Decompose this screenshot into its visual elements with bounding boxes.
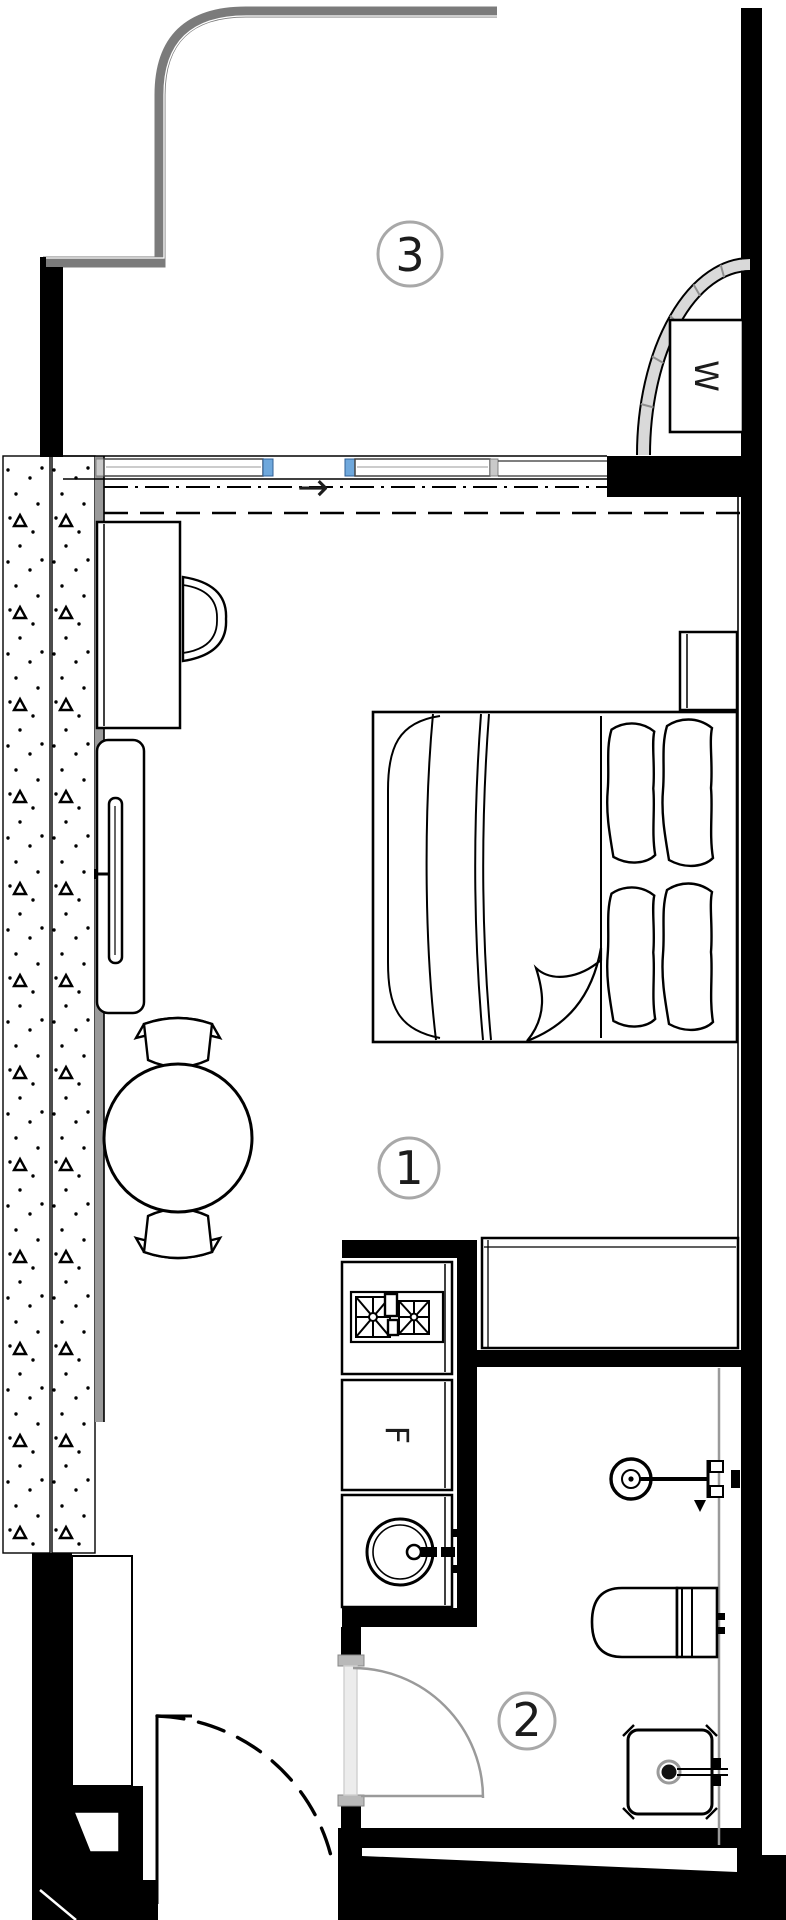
room-label-1: 1 [379,1138,439,1198]
wardrobe-cabinet [482,1238,738,1348]
nightstand [680,632,737,710]
bed [373,712,737,1042]
window-jamb [96,459,104,476]
entry-direction-arrow-icon: → [297,465,329,509]
burner-icon [399,1301,429,1334]
room-label-2: 2 [499,1693,555,1749]
floor-plan-svg: → [0,0,786,1920]
fridge-label: F [378,1426,416,1444]
window-mullion [263,459,273,476]
kitchen-sink [342,1495,460,1607]
wardrobe-label: W [687,360,725,392]
room-label-2-text: 2 [512,1693,541,1747]
door-jamb [338,1655,364,1666]
dining-chair-bottom [136,1209,220,1258]
floor-plan: → [0,0,786,1920]
dining-chair-top [136,1018,220,1067]
room-label-3-text: 3 [395,228,424,282]
door-jamb [338,1795,364,1806]
kitchen-fridge: F [342,1380,452,1490]
hatched-wall [3,456,104,1553]
faucet [407,1545,421,1559]
kitchen-stove [342,1262,452,1374]
room-label-3: 3 [378,222,442,286]
toilet [592,1588,725,1657]
desk [97,522,180,728]
window-jamb [490,459,498,476]
dining-table [104,1064,252,1212]
room-label-1-text: 1 [394,1141,423,1195]
bathroom-sink [623,1725,728,1819]
window-mullion [345,459,355,476]
door-leaf [344,1666,357,1795]
